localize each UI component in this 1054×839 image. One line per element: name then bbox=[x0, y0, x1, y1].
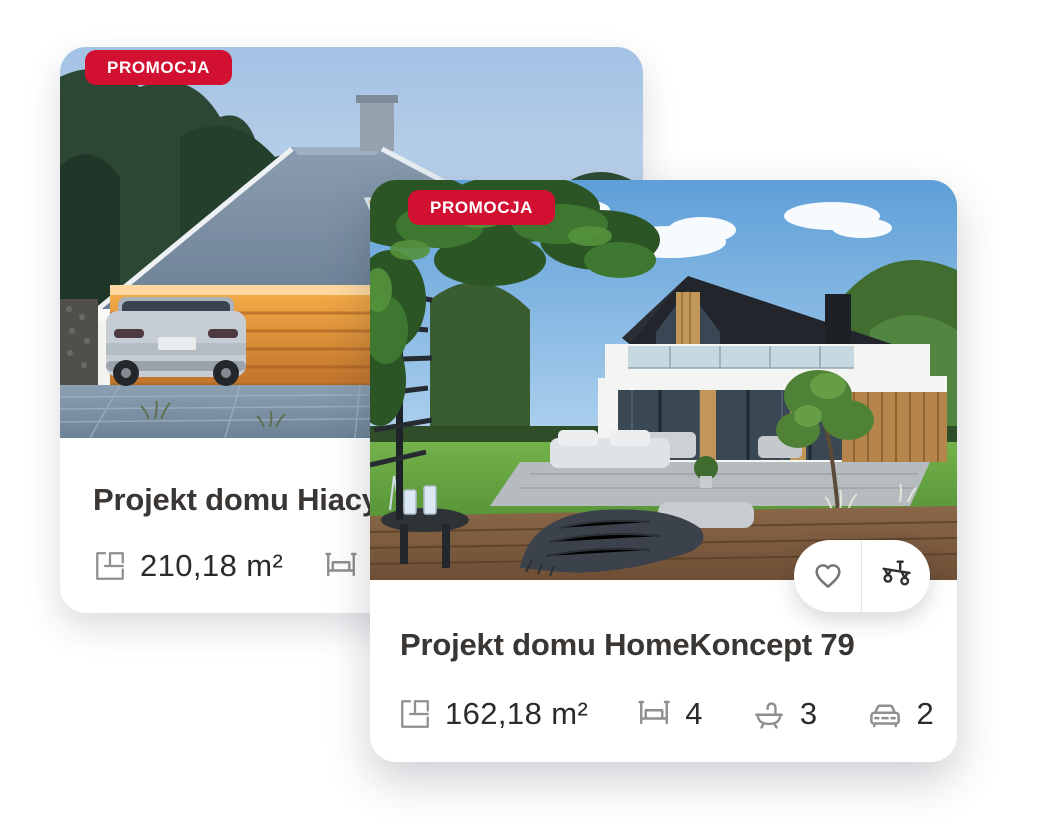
front-card-body: Projekt domu HomeKoncept 79 162,18 m² 4 bbox=[370, 580, 957, 733]
area-stat: 210,18 m² bbox=[93, 548, 283, 584]
bath-icon bbox=[751, 696, 787, 732]
floor-plan-icon bbox=[398, 697, 432, 731]
car-icon bbox=[866, 695, 904, 733]
house-day-photo-illustration bbox=[370, 180, 957, 580]
promo-badge: PROMOCJA bbox=[85, 50, 232, 85]
promo-badge: PROMOCJA bbox=[408, 190, 555, 225]
garage-stat: 2 bbox=[866, 695, 935, 733]
front-card-title: Projekt domu HomeKoncept 79 bbox=[400, 627, 957, 663]
bed-icon bbox=[323, 548, 359, 584]
front-card-stats: 162,18 m² 4 3 bbox=[398, 695, 957, 733]
bed-icon bbox=[636, 696, 672, 732]
property-card-front[interactable]: PROMOCJA bbox=[370, 180, 957, 762]
floor-plan-icon bbox=[93, 549, 127, 583]
baths-stat: 3 bbox=[751, 696, 818, 732]
area-value: 210,18 m² bbox=[140, 548, 283, 584]
beds-stat: 4 bbox=[636, 696, 703, 732]
beds-stat bbox=[323, 548, 359, 584]
beds-value: 4 bbox=[685, 696, 703, 732]
car-illustration bbox=[106, 297, 246, 386]
baths-value: 3 bbox=[800, 696, 818, 732]
area-stat: 162,18 m² bbox=[398, 696, 588, 732]
area-value: 162,18 m² bbox=[445, 696, 588, 732]
page: PROMOCJA Projekt domu Hiacy 210,18 m² bbox=[0, 0, 1054, 839]
front-card-photo bbox=[370, 180, 957, 580]
garage-value: 2 bbox=[917, 696, 935, 732]
